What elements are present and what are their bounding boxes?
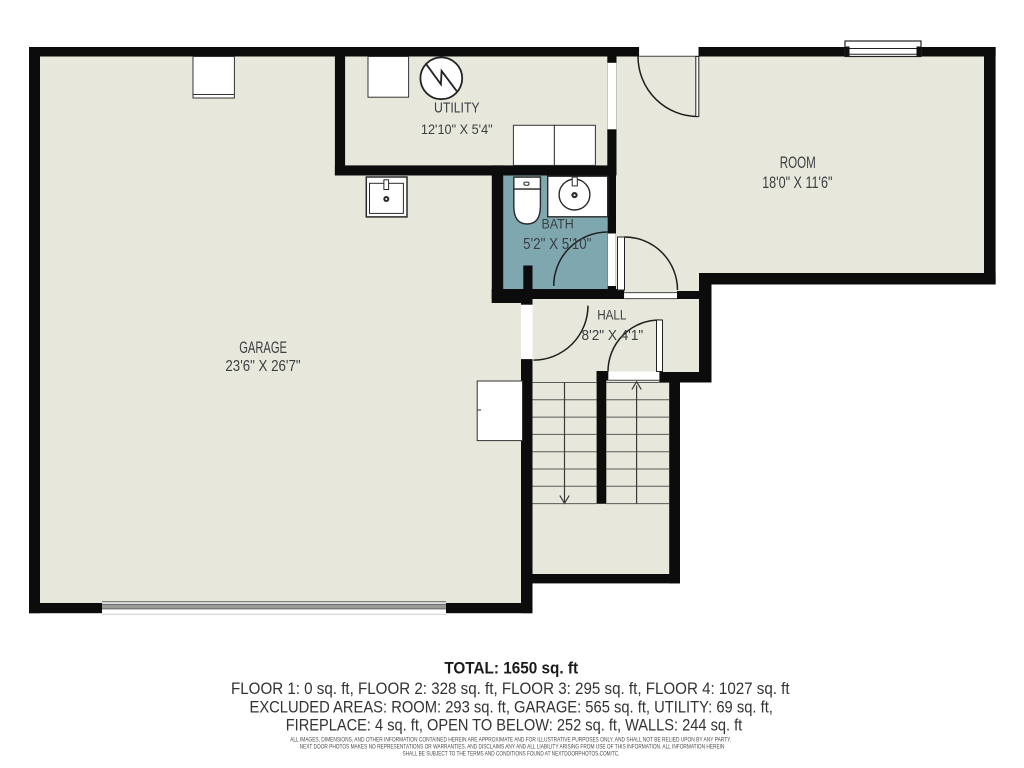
svg-text:18'0" X 11'6": 18'0" X 11'6" — [762, 173, 832, 192]
svg-text:ALL IMAGES, DIMENSIONS, AND OT: ALL IMAGES, DIMENSIONS, AND OTHER INFORM… — [290, 737, 731, 744]
svg-text:UTILITY: UTILITY — [434, 100, 480, 117]
svg-text:FLOOR 1: 0 sq. ft, FLOOR 2: 32: FLOOR 1: 0 sq. ft, FLOOR 2: 328 sq. ft, … — [231, 679, 790, 698]
svg-text:HALL: HALL — [597, 308, 627, 323]
svg-text:BATH: BATH — [542, 217, 574, 233]
svg-text:ROOM: ROOM — [780, 153, 816, 172]
svg-text:8'2" X 4'1": 8'2" X 4'1" — [582, 328, 644, 344]
svg-text:SHALL BE SUBJECT TO THE TERMS: SHALL BE SUBJECT TO THE TERMS AND CONDIT… — [403, 750, 620, 757]
svg-text:EXCLUDED AREAS: ROOM: 293 sq.: EXCLUDED AREAS: ROOM: 293 sq. ft, GARAGE… — [250, 698, 773, 717]
svg-text:TOTAL: 1650 sq. ft: TOTAL: 1650 sq. ft — [444, 659, 578, 678]
svg-text:FIREPLACE: 4 sq. ft, OPEN TO B: FIREPLACE: 4 sq. ft, OPEN TO BELOW: 252 … — [286, 716, 743, 735]
svg-text:5'2" X 5'10": 5'2" X 5'10" — [523, 236, 591, 253]
svg-text:GARAGE: GARAGE — [239, 338, 287, 357]
svg-text:12'10" X 5'4": 12'10" X 5'4" — [421, 121, 493, 137]
svg-text:23'6" X 26'7": 23'6" X 26'7" — [225, 358, 300, 375]
